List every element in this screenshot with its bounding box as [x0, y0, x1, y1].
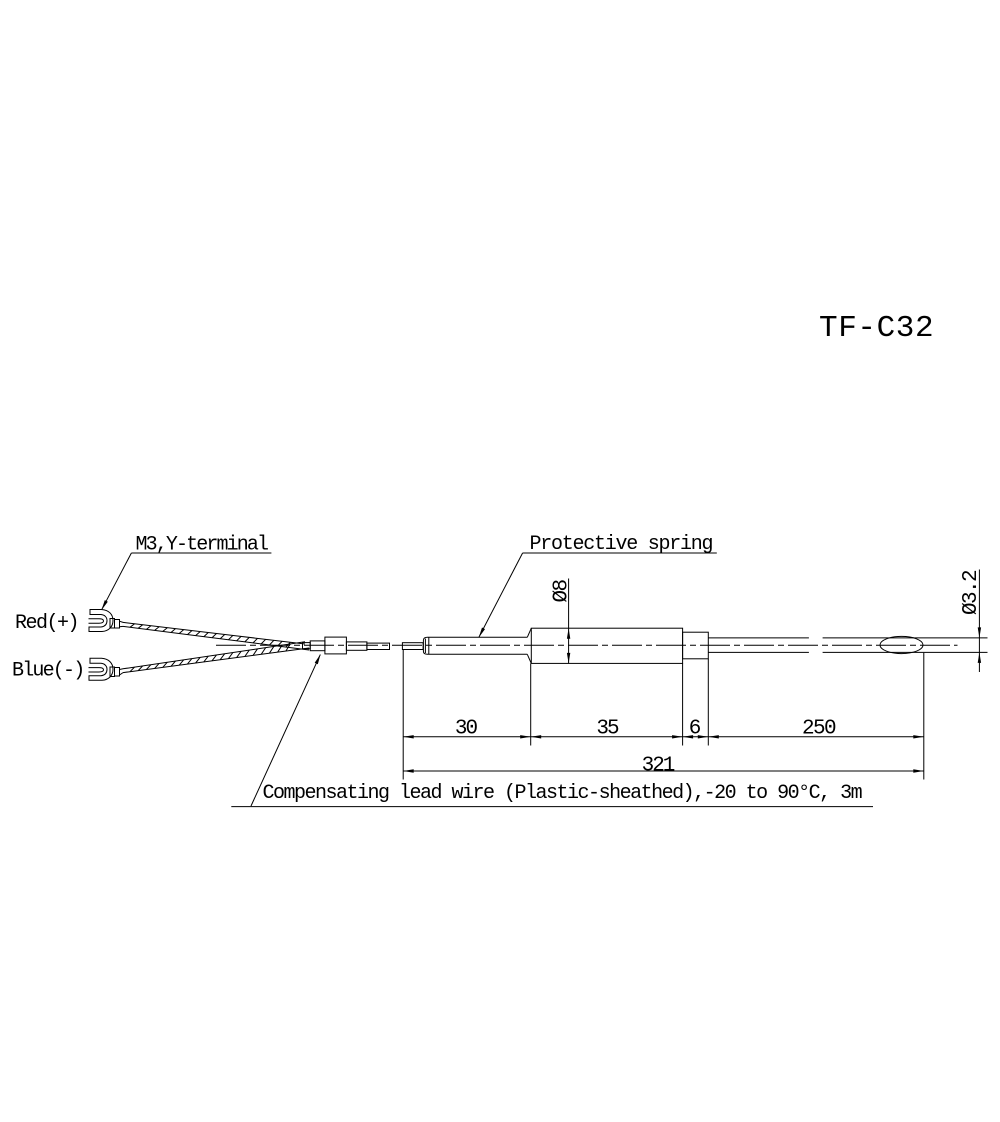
svg-text:Ø8: Ø8 [551, 579, 574, 602]
svg-text:6: 6 [689, 718, 701, 741]
svg-text:Blue(-): Blue(-) [12, 659, 83, 682]
svg-text:Ø3.2: Ø3.2 [960, 570, 983, 615]
svg-text:35: 35 [596, 718, 619, 741]
svg-text:Compensating lead wire (Plasti: Compensating lead wire (Plastic-sheathed… [263, 782, 862, 805]
svg-text:321: 321 [642, 754, 675, 777]
svg-text:Red(+): Red(+) [15, 612, 78, 635]
svg-text:250: 250 [802, 718, 836, 741]
svg-text:TF-C32: TF-C32 [819, 311, 934, 346]
svg-text:30: 30 [455, 718, 478, 741]
